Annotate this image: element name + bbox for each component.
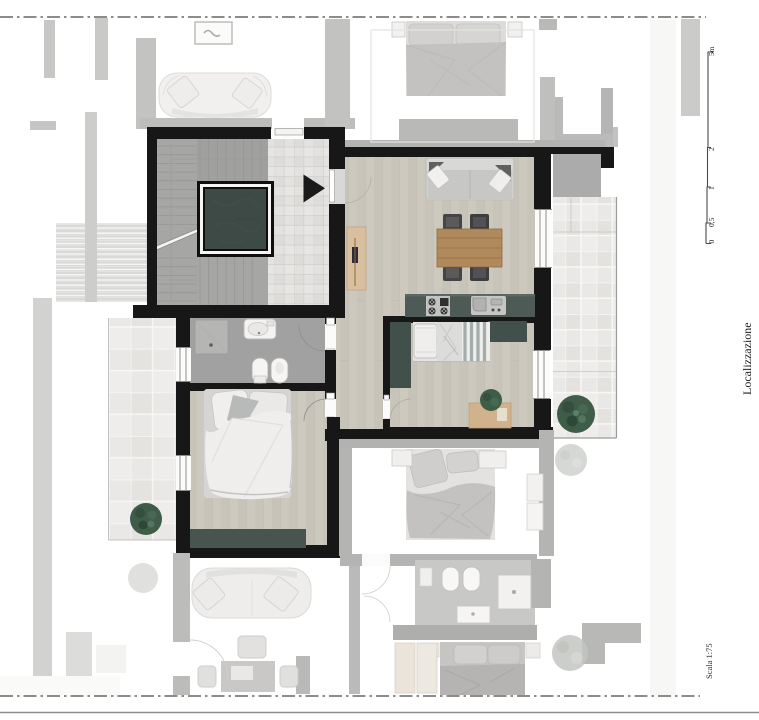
svg-text:2: 2 — [707, 147, 716, 151]
svg-text:Localizzazione: Localizzazione — [740, 322, 754, 395]
svg-text:0: 0 — [707, 240, 716, 244]
svg-text:Scala 1:75: Scala 1:75 — [704, 643, 714, 679]
svg-text:5m: 5m — [707, 46, 716, 56]
svg-text:0,5: 0,5 — [707, 217, 716, 227]
svg-text:1: 1 — [707, 186, 716, 190]
